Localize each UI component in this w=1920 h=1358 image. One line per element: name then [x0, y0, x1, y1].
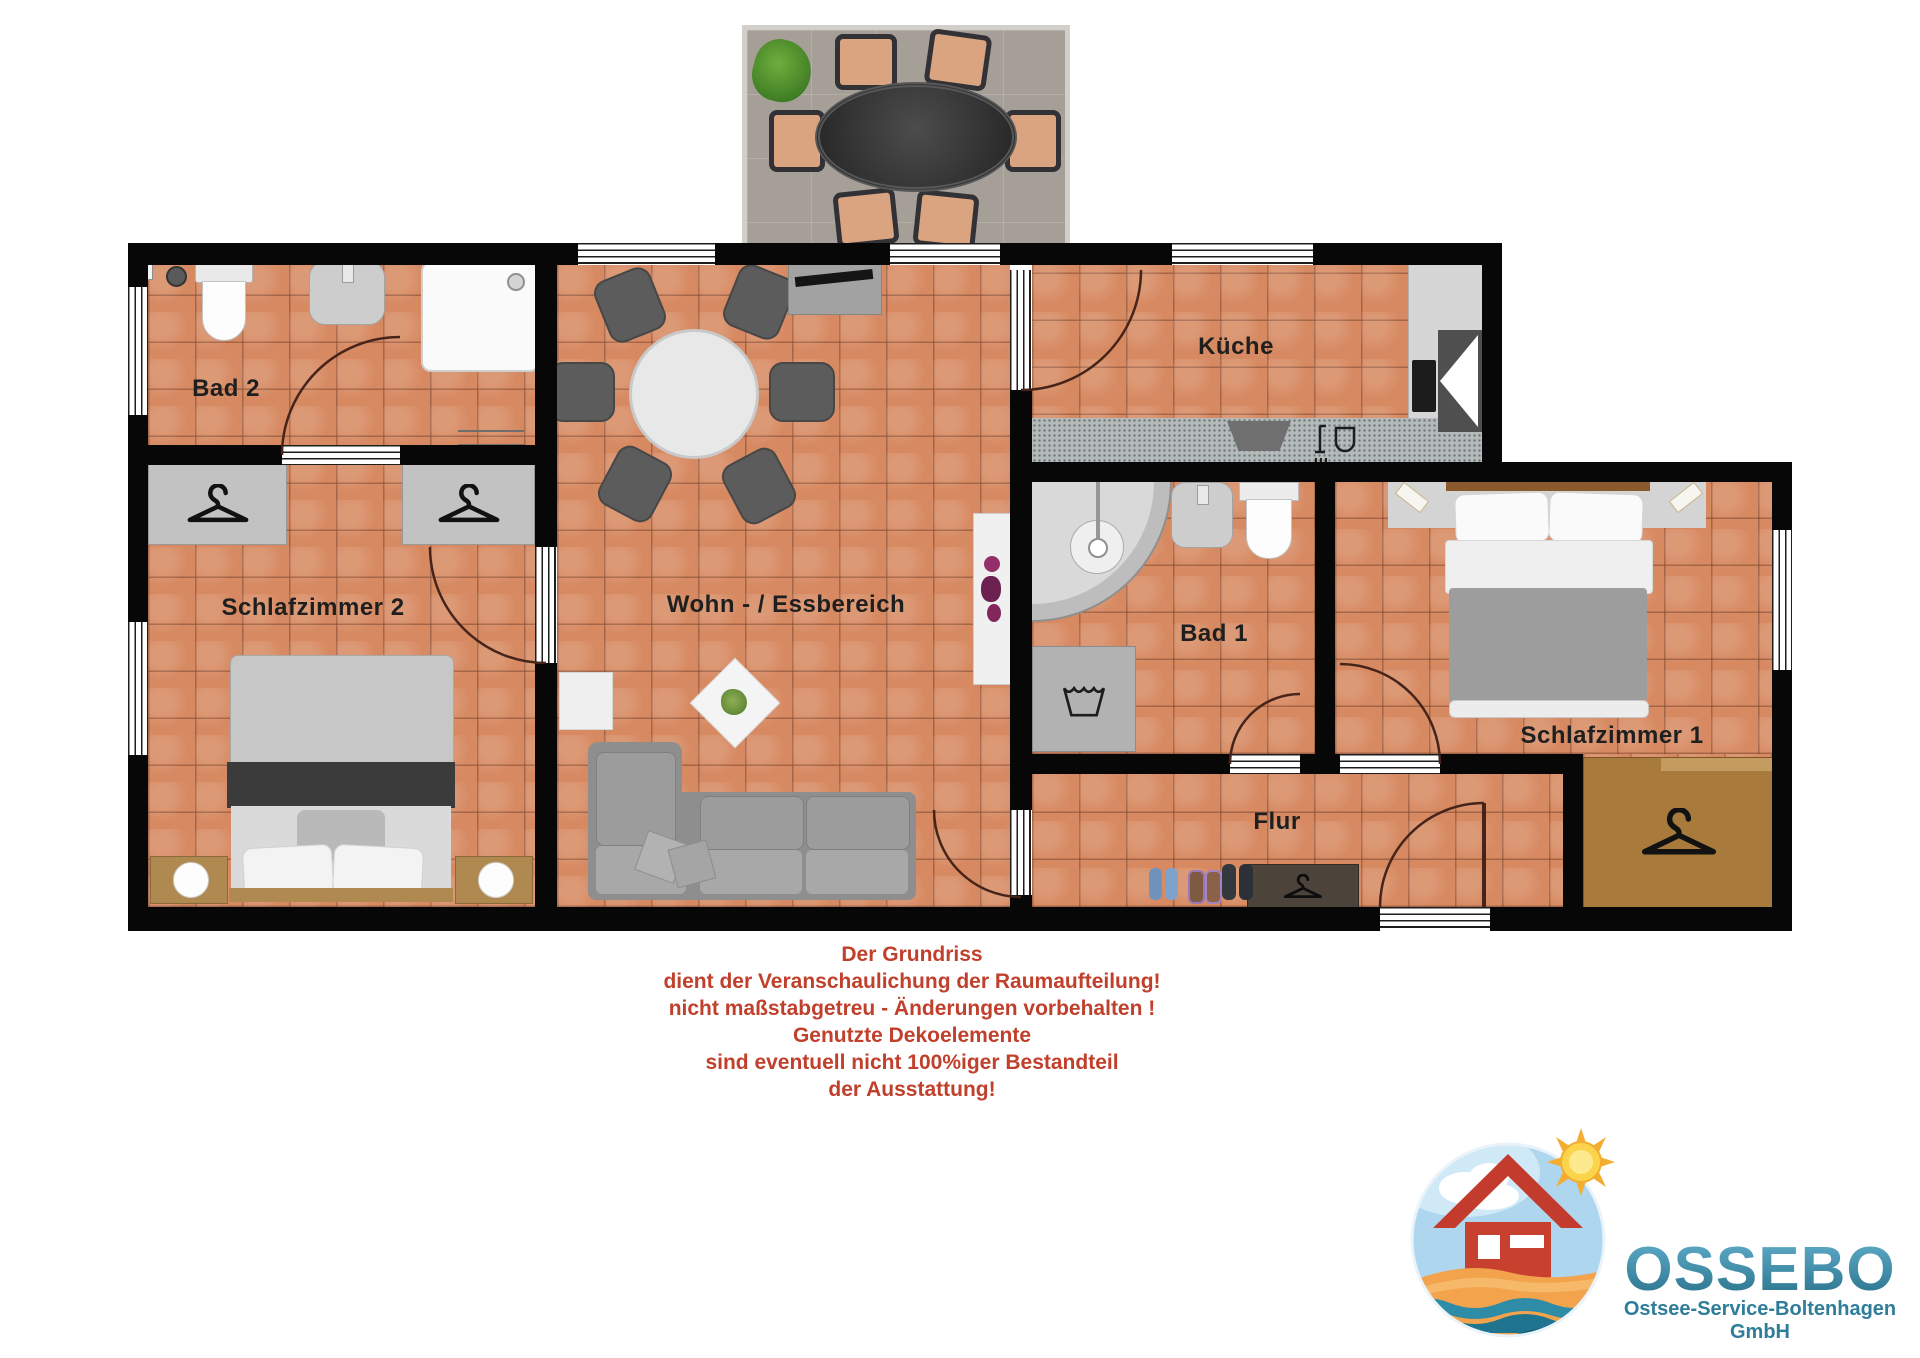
logo-emblem [1405, 1122, 1620, 1350]
door-arc [1021, 270, 1141, 390]
room-label-bad2: Bad 2 [192, 375, 260, 403]
logo-tagline: Ostsee-Service-Boltenhagen GmbH [1595, 1298, 1920, 1344]
door-arc [1230, 694, 1300, 764]
door-arc [934, 810, 1021, 897]
room-label-schlafzimmer2: Schlafzimmer 2 [221, 594, 404, 622]
disclaimer-line: der Ausstattung! [312, 1076, 1512, 1103]
disclaimer-line: Der Grundriss [312, 941, 1512, 968]
room-label-schlafzimmer1: Schlafzimmer 1 [1520, 722, 1703, 750]
room-label-flur: Flur [1253, 808, 1300, 836]
floorplan-page: Bad 2 Schlafzimmer 2 Wohn - / Essbereich… [0, 0, 1920, 1358]
sun-icon [1547, 1128, 1615, 1196]
disclaimer-text: Der Grundriss dient der Veranschaulichun… [312, 941, 1512, 1103]
disclaimer-line: Genutzte Dekoelemente [312, 1022, 1512, 1049]
door-arc [282, 337, 400, 455]
room-label-wohnbereich: Wohn - / Essbereich [667, 591, 905, 619]
door-arc [1340, 664, 1440, 764]
logo-brand-name: OSSEBO [1610, 1234, 1910, 1305]
room-label-bad1: Bad 1 [1180, 620, 1248, 648]
door-swing-arcs [0, 0, 1920, 1358]
disclaimer-line: nicht maßstabgetreu - Änderungen vorbeha… [312, 995, 1512, 1022]
room-label-kueche: Küche [1198, 333, 1274, 361]
door-arc [430, 547, 546, 663]
disclaimer-line: sind eventuell nicht 100%iger Bestandtei… [312, 1049, 1512, 1076]
door-arc [1380, 803, 1484, 907]
disclaimer-line: dient der Veranschaulichung der Raumauft… [312, 968, 1512, 995]
